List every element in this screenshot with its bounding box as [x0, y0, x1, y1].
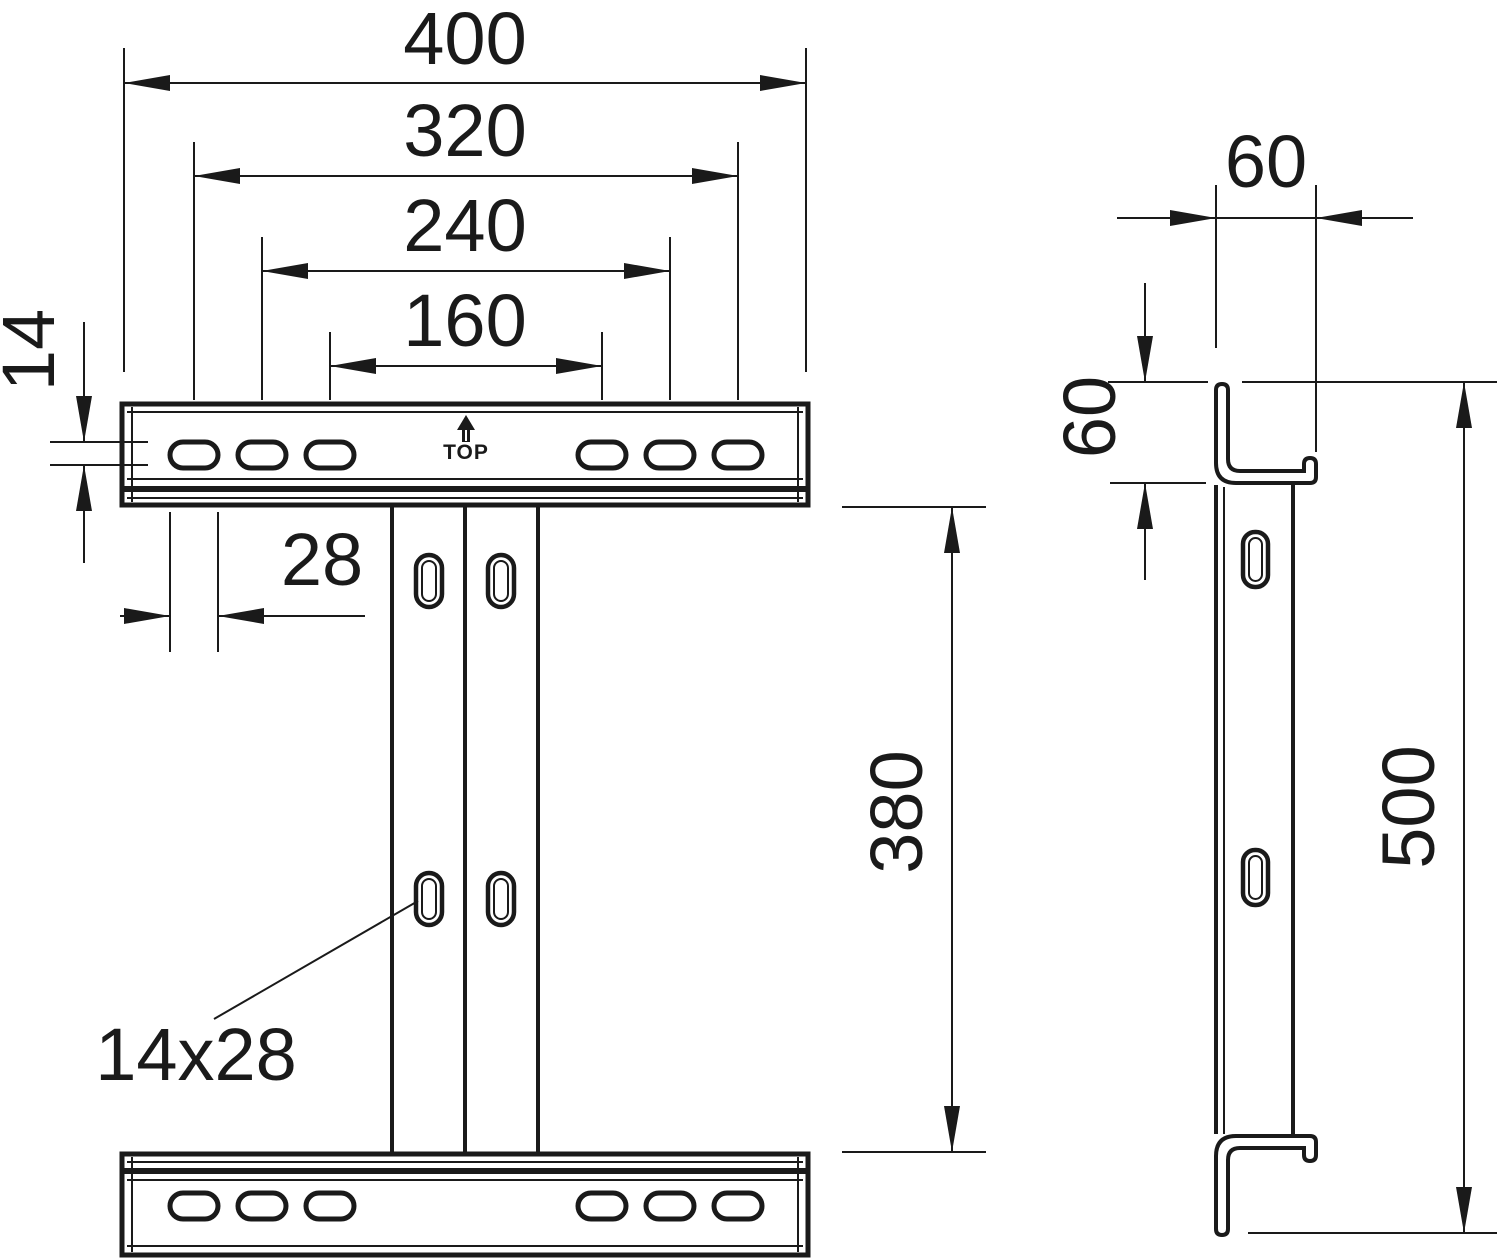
dim-240-label: 240: [403, 184, 526, 267]
dim-160-label: 160: [403, 279, 526, 362]
technical-drawing-page: TOP: [0, 0, 1500, 1259]
dim-380-label: 380: [855, 750, 938, 873]
slot-size-label: 14x28: [95, 1013, 297, 1096]
dim-320-label: 320: [403, 89, 526, 172]
dim-400-label: 400: [403, 0, 526, 80]
top-marking-label: TOP: [443, 441, 489, 464]
dim-14-label: 14: [0, 309, 70, 391]
dim-60-height-label: 60: [1048, 376, 1131, 458]
dim-500-label: 500: [1367, 745, 1450, 868]
dim-28-label: 28: [281, 518, 363, 601]
dim-60-depth-label: 60: [1225, 120, 1307, 203]
bracket-dimension-drawing: TOP: [0, 0, 1500, 1259]
